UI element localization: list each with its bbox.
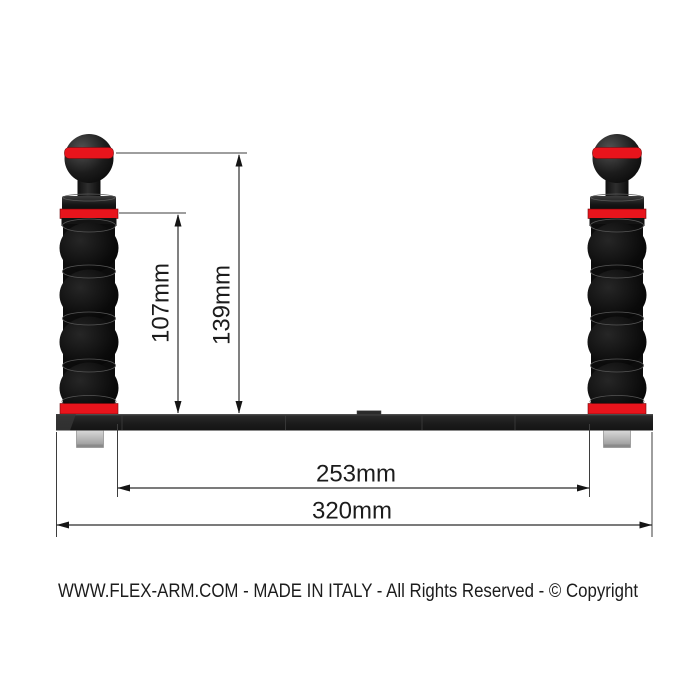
arrow-down-icon (175, 401, 182, 414)
footer-copyright: WWW.FLEX-ARM.COM - MADE IN ITALY - All R… (58, 581, 639, 602)
dimension-label-320: 320mm (312, 498, 392, 525)
handle-segment (588, 317, 647, 368)
left-handle-red-ring-bottom (60, 404, 118, 415)
handle-segment (60, 317, 119, 368)
handle-segment (60, 223, 119, 274)
right-handle-red-ring-bottom (588, 404, 646, 415)
right-ball-red-band (593, 148, 642, 159)
left-mount-bolt-base (77, 445, 104, 448)
left-clamp-head (62, 196, 116, 210)
tray-assembly (56, 411, 653, 448)
dimension-ball-top-height: 139mm (116, 153, 247, 414)
right-handle (588, 134, 647, 414)
handle-segment (60, 270, 119, 321)
arrow-down-icon (236, 401, 243, 414)
tray-bar (56, 414, 653, 431)
handle-segment (588, 223, 647, 274)
arrow-left-icon (118, 485, 131, 492)
arrow-up-icon (175, 214, 182, 227)
dimension-handle-top-height: 107mm (119, 213, 186, 414)
dimension-label-107: 107mm (148, 263, 175, 343)
arrow-right-icon (640, 522, 653, 529)
tray-center-slot (357, 411, 381, 415)
arrow-right-icon (577, 485, 590, 492)
left-handle-red-ring-top (60, 209, 118, 219)
dimension-label-253: 253mm (316, 461, 396, 488)
left-handle (60, 134, 119, 414)
arrow-left-icon (57, 522, 70, 529)
right-handle-red-ring-top (588, 209, 646, 219)
right-clamp-head (590, 196, 644, 210)
dimension-label-139: 139mm (209, 265, 236, 345)
arrow-up-icon (236, 154, 243, 167)
product-diagram: 139mm 107mm 253mm 320mm WWW.FLEX-ARM.COM… (0, 0, 700, 700)
left-ball-red-band (65, 148, 114, 159)
handle-segment (588, 270, 647, 321)
right-mount-bolt-base (604, 445, 631, 448)
dimension-inner-handle-span: 253mm (118, 424, 590, 497)
